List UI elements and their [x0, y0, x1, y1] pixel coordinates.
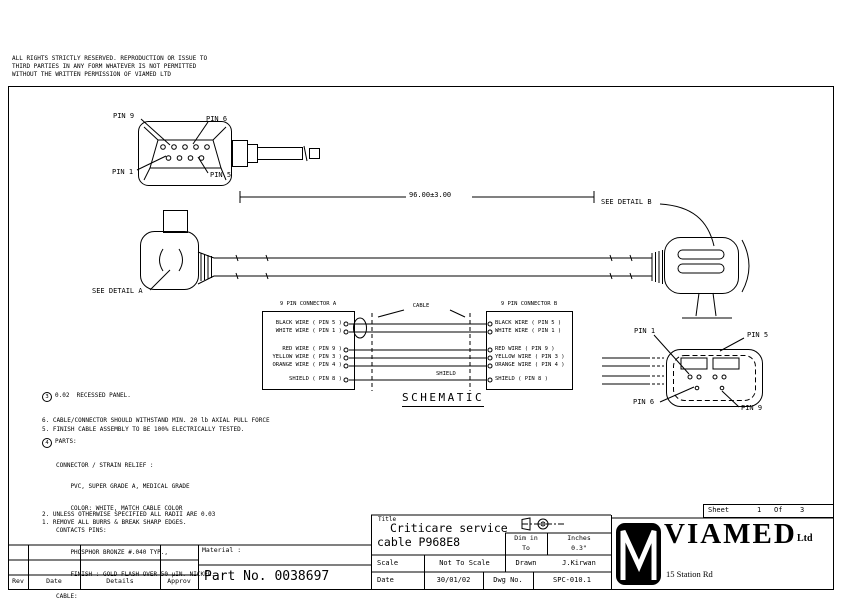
assembly-cable: [214, 255, 652, 279]
schematic-left-wire: RED WIRE ( PIN 9 ): [264, 346, 342, 352]
parts-line: PHOSPHOR BRONZE #.040 TYP.,: [56, 549, 215, 556]
copyright-line-2: THIRD PARTIES IN ANY FORM WHATEVER IS NO…: [12, 63, 196, 70]
parts-line: PVC, SUPER GRADE A, MEDICAL GRADE: [56, 483, 215, 490]
assembly-right-connector: [652, 238, 749, 319]
detail-a-pin9-label: PIN 9: [113, 112, 134, 120]
detail-b-face-view: [602, 335, 763, 407]
dwg-no-value: SPC-010.1: [533, 576, 611, 584]
part-number: Part No. 0038697: [204, 569, 329, 584]
date-value: 30/01/02: [424, 576, 483, 584]
parts-line: CONTACTS PINS:: [56, 527, 215, 534]
schematic-right-wire: ORANGE WIRE ( PIN 4 ): [495, 362, 575, 368]
date-label: Date: [377, 576, 394, 584]
schematic-right-header: 9 PIN CONNECTOR B: [486, 301, 572, 307]
see-detail-b-leader: [660, 204, 714, 246]
rev-approv-column-header: Approv: [160, 578, 198, 586]
see-detail-a-leader: [150, 270, 170, 290]
rev-details-column-header: Details: [80, 578, 160, 586]
viamed-logo-icon: [616, 523, 661, 585]
drawn-value: J.Kirwan: [547, 559, 611, 567]
schematic-right-wire: YELLOW WIRE ( PIN 3 ): [495, 354, 575, 360]
parts-line: CABLE:: [56, 593, 215, 599]
copyright-line-3: WITHOUT THE WRITTEN PERMISSION OF VIAMED…: [12, 71, 171, 78]
material-label: Material :: [202, 547, 241, 555]
address-line: 15 Station Rd: [666, 570, 739, 579]
detail-b-pin6-label: PIN 6: [633, 398, 654, 406]
note-4-text: PARTS:: [55, 438, 77, 445]
assembly-left-connector: [141, 211, 215, 290]
schematic-title: SCHEMATIC: [402, 392, 484, 407]
scale-value: Not To Scale: [424, 559, 505, 567]
note-5: 5. FINISH CABLE ASSEMBLY TO BE 100% ELEC…: [42, 426, 244, 433]
detail-a-pin5-label: PIN 5: [210, 171, 231, 179]
parts-line: CONNECTOR / STRAIN RELIEF :: [56, 462, 215, 469]
note-3-text: 0.02 RECESSED PANEL.: [55, 392, 131, 399]
note-3-flag: 3: [42, 392, 52, 402]
schematic-right-wire: BLACK WIRE ( PIN 5 ): [495, 320, 575, 326]
tolerance-value: 0.3": [547, 545, 611, 553]
rev-column-header: Rev: [8, 578, 28, 586]
schematic-left-wire: SHIELD ( PIN 8 ): [264, 376, 342, 382]
dim-unit-value: Inches: [547, 535, 611, 543]
dwg-no-label: Dwg No.: [483, 576, 533, 584]
detail-b-pin9-label: PIN 9: [741, 404, 762, 412]
note-2: 2. UNLESS OTHERWISE SPECIFIED ALL RADII …: [42, 511, 215, 518]
note-4-flag: 4: [42, 438, 52, 448]
drawn-label: Drawn: [505, 559, 547, 567]
detail-a-pin6-label: PIN 6: [206, 115, 227, 123]
note-1: 1. REMOVE ALL BURRS & BREAK SHARP EDGES.: [42, 519, 187, 526]
rev-date-column-header: Date: [28, 578, 80, 586]
detail-b-pin1-label: PIN 1: [634, 327, 655, 335]
schematic-left-wire: ORANGE WIRE ( PIN 4 ): [264, 362, 342, 368]
drawing-title-line-1: Criticare service: [390, 522, 508, 536]
note-3: 30.02 RECESSED PANEL.: [42, 392, 131, 402]
length-dimension: 96.00±3.00: [409, 191, 451, 199]
sheet-number: 1: [757, 506, 761, 514]
company-name: VIAMED: [664, 520, 797, 549]
detail-a-pin1-label: PIN 1: [112, 168, 133, 176]
engineering-drawing-sheet: ALL RIGHTS STRICTLY RESERVED. REPRODUCTI…: [0, 0, 842, 599]
scale-label: Scale: [377, 559, 398, 567]
sheet-total: 3: [800, 506, 804, 514]
schematic-left-wire: WHITE WIRE ( PIN 1 ): [264, 328, 342, 334]
schematic-right-wire: SHIELD ( PIN 8 ): [495, 376, 575, 382]
schematic-left-wire: BLACK WIRE ( PIN 5 ): [264, 320, 342, 326]
company-suffix: Ltd: [797, 533, 813, 545]
tolerance-label: To: [505, 545, 547, 553]
schematic-shield-label: SHIELD: [436, 371, 456, 377]
sheet-label: Sheet: [708, 506, 729, 514]
detail-b-pin5-label: PIN 5: [747, 331, 768, 339]
schematic-cable-label: CABLE: [372, 303, 470, 309]
projection-symbol-icon: [522, 518, 564, 530]
company-address: 15 Station Rd Cross Hills, Keighley West…: [666, 551, 739, 599]
note-6: 6. CABLE/CONNECTOR SHOULD WITHSTAND MIN.…: [42, 417, 270, 424]
sheet-of-label: Of: [774, 506, 782, 514]
schematic-left-wire: YELLOW WIRE ( PIN 3 ): [264, 354, 342, 360]
dim-in-label: Dim in: [505, 535, 547, 543]
see-detail-a-label: SEE DETAIL A: [92, 287, 143, 295]
schematic-left-header: 9 PIN CONNECTOR A: [262, 301, 354, 307]
schematic-right-wire: WHITE WIRE ( PIN 1 ): [495, 328, 575, 334]
drawing-title-line-2: cable P968E8: [377, 536, 460, 550]
schematic-right-wire: RED WIRE ( PIN 9 ): [495, 346, 575, 352]
see-detail-b-label: SEE DETAIL B: [601, 198, 652, 206]
copyright-line-1: ALL RIGHTS STRICTLY RESERVED. REPRODUCTI…: [12, 55, 207, 62]
